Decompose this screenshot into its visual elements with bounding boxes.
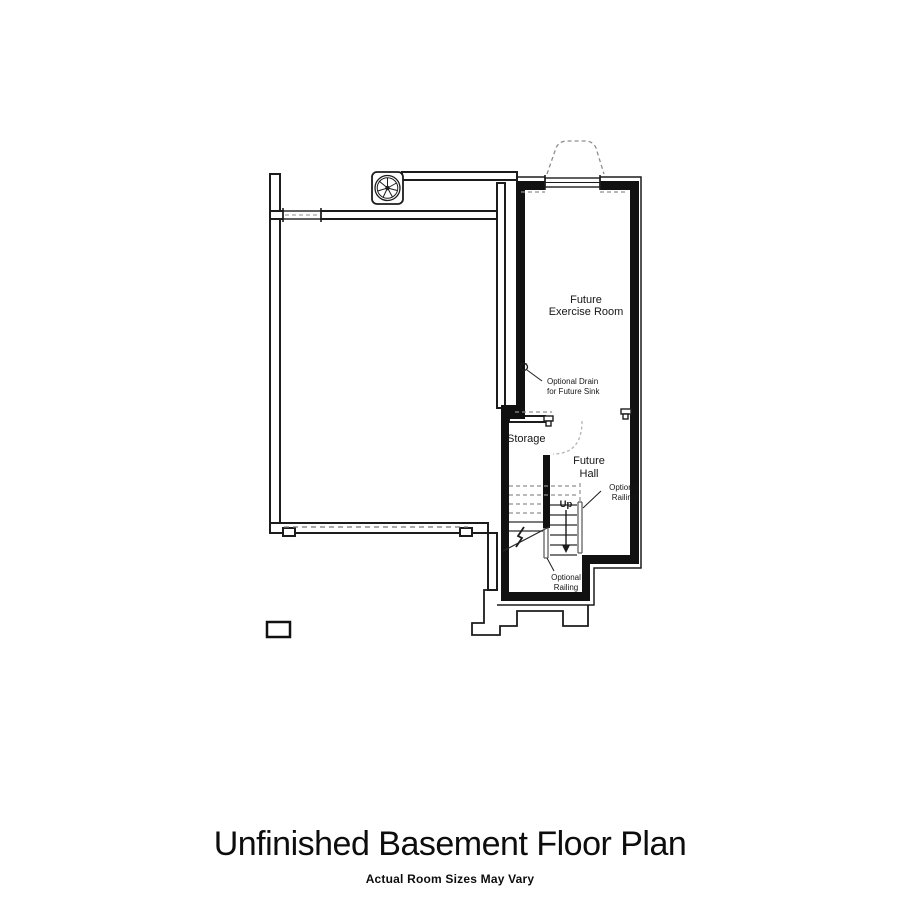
railing-bottom-label-line1: Optional: [551, 573, 581, 582]
hall-label-line1: Future: [573, 455, 605, 467]
exercise-top-wall-left: [516, 181, 545, 190]
room-right-wall: [497, 183, 505, 408]
door-jamb-marks: [544, 409, 631, 426]
railing-right-label-line1: Optional: [609, 483, 639, 492]
railing-bottom: [544, 528, 548, 558]
storage-corner-stub: [501, 405, 525, 419]
railing-right: [578, 502, 582, 553]
hall-label-line2: Hall: [580, 468, 599, 480]
storage-label: Storage: [507, 433, 546, 445]
left-wall: [270, 174, 280, 533]
up-arrow: [562, 510, 570, 553]
bottom-wall: [270, 523, 488, 533]
exhaust-fan-icon: [372, 172, 403, 204]
up-label: Up: [560, 499, 573, 510]
page-title: Unfinished Basement Floor Plan: [0, 826, 900, 863]
drain-label-line1: Optional Drain: [547, 377, 598, 386]
staircase: [503, 483, 580, 555]
stair-bottom-wall: [501, 592, 590, 601]
title-block: Unfinished Basement Floor Plan Actual Ro…: [0, 826, 900, 886]
plan-labels: Future Exercise Room Optional Drain for …: [507, 294, 639, 592]
exercise-right-wall: [630, 181, 639, 564]
bottom-connector-wall: [488, 533, 497, 590]
drain-label-line2: for Future Sink: [547, 387, 600, 396]
window-well: [547, 141, 604, 174]
railing-bottom-label-line2: Railing: [554, 583, 578, 592]
stair-break-symbol: [516, 527, 524, 547]
exercise-window: [545, 175, 600, 191]
bottom-wall-jog-right: [460, 528, 472, 536]
bottom-wall-jog-left: [283, 528, 295, 536]
door-swing-arc: [553, 421, 582, 454]
stair-divider-wall: [543, 455, 550, 528]
exercise-room-label-line1: Future: [570, 294, 602, 306]
page-subtitle: Actual Room Sizes May Vary: [0, 872, 900, 886]
hall-step-wall: [582, 555, 639, 564]
exercise-left-wall: [516, 181, 525, 413]
railing-right-label-line2: Railing: [612, 493, 636, 502]
exercise-room-label-line2: Exercise Room: [549, 306, 624, 318]
foundation-pier: [267, 622, 290, 637]
basement-floor-plan-drawing: Future Exercise Room Optional Drain for …: [0, 0, 900, 820]
window-top-left: [283, 208, 321, 222]
top-wall-upper: [402, 172, 517, 180]
